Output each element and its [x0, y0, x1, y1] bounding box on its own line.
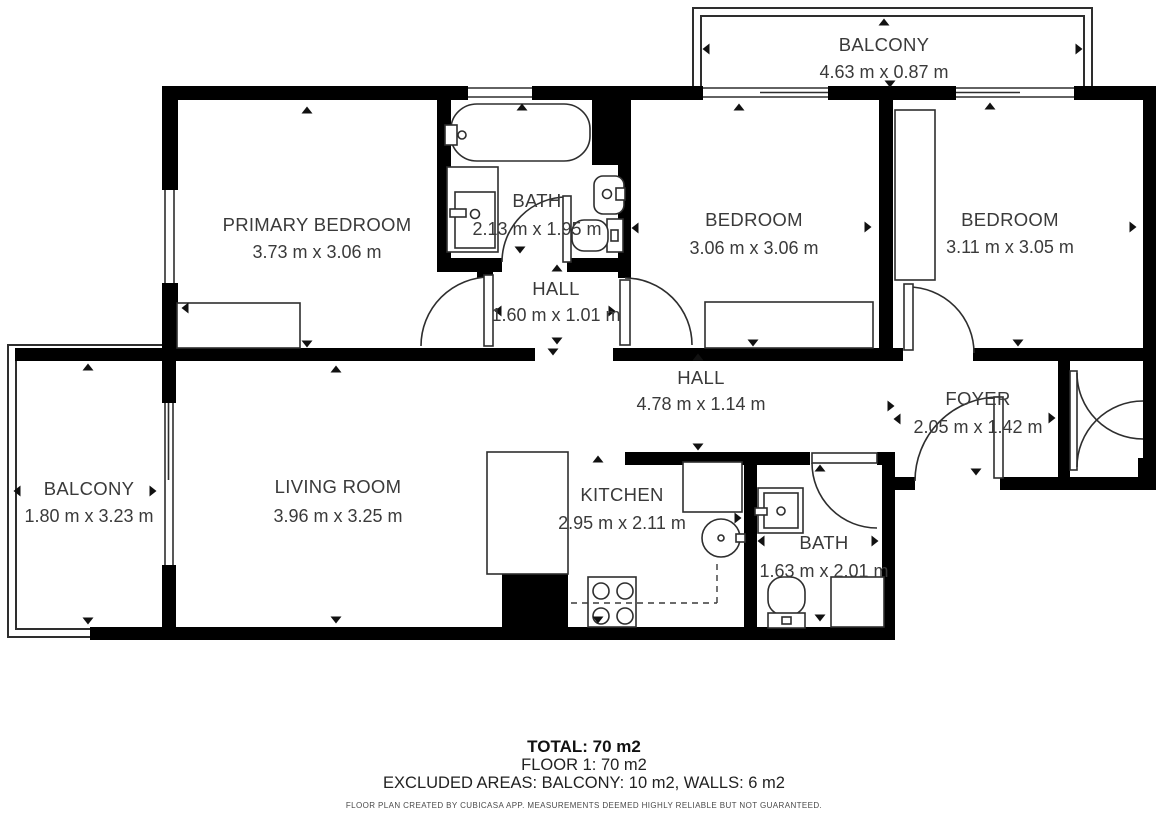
measure-arrow-icon: [552, 265, 563, 272]
measure-arrow-icon: [302, 341, 313, 348]
room-dims-balcony-top: 4.63 m x 0.87 m: [819, 62, 948, 82]
measure-arrow-icon: [865, 222, 872, 233]
window-bath-1: [468, 85, 532, 101]
measure-arrow-icon: [515, 247, 526, 254]
measure-arrow-icon: [735, 513, 742, 524]
door-bath-2: [812, 453, 877, 528]
measure-arrow-icon: [758, 536, 765, 547]
footer-total: TOTAL: 70 m2: [527, 737, 641, 756]
room-label-primary-bedroom: PRIMARY BEDROOM: [223, 214, 412, 235]
door-primary-bedroom: [421, 275, 493, 346]
room-label-living-room: LIVING ROOM: [275, 476, 402, 497]
room-label-hall-2: HALL: [677, 367, 724, 388]
room-dims-bedroom-mid: 3.06 m x 3.06 m: [689, 238, 818, 258]
footer-floor: FLOOR 1: 70 m2: [521, 756, 647, 774]
room-label-bedroom-right: BEDROOM: [961, 209, 1059, 230]
measure-arrow-icon: [1076, 44, 1083, 55]
room-label-bath-2: BATH: [799, 532, 848, 553]
bath-2-shower: [831, 577, 884, 627]
measure-arrow-icon: [888, 401, 895, 412]
floor-plan-canvas: BALCONY 4.63 m x 0.87 m PRIMARY BEDROOM …: [0, 0, 1168, 819]
room-label-foyer: FOYER: [945, 388, 1010, 409]
bath-2-vanity-sink: [755, 488, 803, 533]
room-dims-hall-1: 1.60 m x 1.01 m: [491, 305, 620, 325]
room-label-balcony-left: BALCONY: [44, 478, 135, 499]
room-label-kitchen: KITCHEN: [580, 484, 663, 505]
measure-arrow-icon: [1130, 222, 1137, 233]
footer-disclaimer: FLOOR PLAN CREATED BY CUBICASA APP. MEAS…: [346, 801, 822, 810]
bath-1-vanity-sink: [447, 167, 498, 252]
bath-1-sink: [594, 176, 625, 214]
measure-arrow-icon: [985, 103, 996, 110]
room-dims-primary-bedroom: 3.73 m x 3.06 m: [252, 242, 381, 262]
room-dims-bath-2: 1.63 m x 2.01 m: [759, 561, 888, 581]
measure-arrow-icon: [331, 366, 342, 373]
floor-plan-page: BALCONY 4.63 m x 0.87 m PRIMARY BEDROOM …: [0, 0, 1168, 819]
measure-arrow-icon: [302, 107, 313, 114]
room-label-bedroom-mid: BEDROOM: [705, 209, 803, 230]
room-dims-bedroom-right: 3.11 m x 3.05 m: [946, 237, 1074, 257]
bath-2-toilet: [768, 577, 805, 628]
window-living-room: [163, 403, 175, 565]
measure-arrow-icon: [693, 444, 704, 451]
window-balcony-top-left: [703, 85, 828, 101]
measure-arrow-icon: [150, 486, 157, 497]
window-balcony-top-right: [956, 85, 1074, 101]
measure-arrow-icon: [879, 19, 890, 26]
measure-arrow-icon: [552, 338, 563, 345]
measure-arrow-icon: [83, 618, 94, 625]
window-primary-bedroom: [163, 190, 177, 283]
measure-arrow-icon: [548, 349, 559, 356]
room-dims-foyer: 2.05 m x 1.42 m: [913, 417, 1042, 437]
door-bedroom-right: [904, 284, 974, 353]
room-label-hall-1: HALL: [532, 278, 579, 299]
room-dims-living-room: 3.96 m x 3.25 m: [273, 506, 402, 526]
measure-arrow-icon: [815, 615, 826, 622]
measure-arrow-icon: [971, 469, 982, 476]
measure-arrow-icon: [331, 617, 342, 624]
doors-foyer-closet: [1070, 371, 1143, 470]
measure-arrow-icon: [632, 223, 639, 234]
walls: [15, 86, 1156, 640]
room-dims-bath-1: 2.13 m x 1.95 m: [472, 219, 601, 239]
footer: TOTAL: 70 m2 FLOOR 1: 70 m2 EXCLUDED ARE…: [346, 737, 822, 810]
measure-arrow-icon: [894, 414, 901, 425]
room-dims-kitchen: 2.95 m x 2.11 m: [558, 513, 686, 533]
footer-excluded: EXCLUDED AREAS: BALCONY: 10 m2, WALLS: 6…: [383, 774, 785, 792]
bathtub: [445, 104, 590, 161]
primary-bedroom-wardrobe: [177, 303, 300, 348]
kitchen-island: [487, 452, 568, 574]
bedroom-right-closet: [895, 110, 935, 280]
measure-arrow-icon: [734, 104, 745, 111]
measure-arrow-icon: [83, 364, 94, 371]
kitchen-sink: [702, 519, 745, 557]
measure-arrow-icon: [815, 465, 826, 472]
room-label-balcony-top: BALCONY: [839, 34, 930, 55]
door-entry-foyer: [915, 397, 1003, 481]
measure-arrow-icon: [593, 456, 604, 463]
door-bedroom-mid: [620, 278, 692, 345]
measure-arrow-icon: [872, 536, 879, 547]
room-label-bath-1: BATH: [512, 190, 561, 211]
measure-arrow-icon: [1049, 413, 1056, 424]
room-dims-hall-2: 4.78 m x 1.14 m: [636, 394, 765, 414]
kitchen-counter: [683, 462, 742, 512]
room-dims-balcony-left: 1.80 m x 3.23 m: [24, 506, 153, 526]
measure-arrow-icon: [1013, 340, 1024, 347]
measure-arrow-icon: [703, 44, 710, 55]
bedroom-mid-wardrobe: [705, 302, 873, 348]
